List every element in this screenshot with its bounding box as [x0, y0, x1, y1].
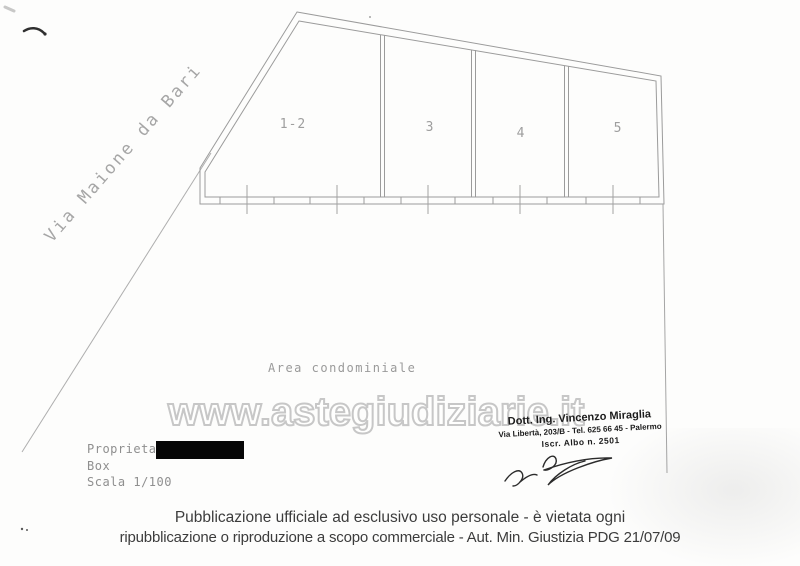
signature-scribble: [0, 0, 800, 566]
scanned-plan-page: Via Maione da Bari 1-2 3 4 5 Area condom…: [0, 0, 800, 566]
